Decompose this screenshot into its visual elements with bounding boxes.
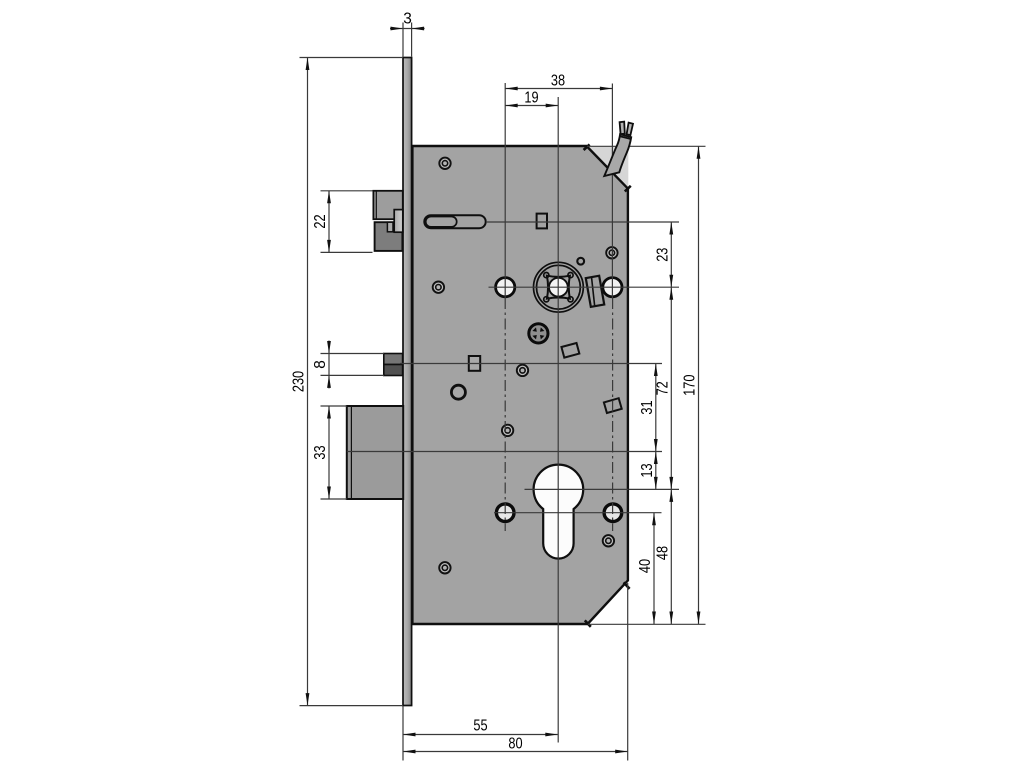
- svg-text:40: 40: [637, 559, 654, 573]
- svg-text:3: 3: [403, 11, 412, 28]
- svg-text:38: 38: [551, 73, 565, 90]
- svg-text:22: 22: [312, 214, 329, 228]
- svg-text:13: 13: [639, 463, 656, 477]
- svg-text:19: 19: [524, 90, 538, 107]
- svg-text:31: 31: [639, 400, 656, 414]
- svg-text:230: 230: [291, 371, 308, 392]
- svg-text:55: 55: [473, 718, 487, 735]
- svg-text:170: 170: [682, 375, 699, 396]
- svg-text:8: 8: [312, 360, 329, 369]
- svg-text:48: 48: [654, 546, 671, 560]
- svg-text:80: 80: [508, 736, 522, 753]
- svg-text:72: 72: [654, 381, 671, 395]
- svg-text:33: 33: [312, 445, 329, 459]
- svg-text:23: 23: [654, 248, 671, 262]
